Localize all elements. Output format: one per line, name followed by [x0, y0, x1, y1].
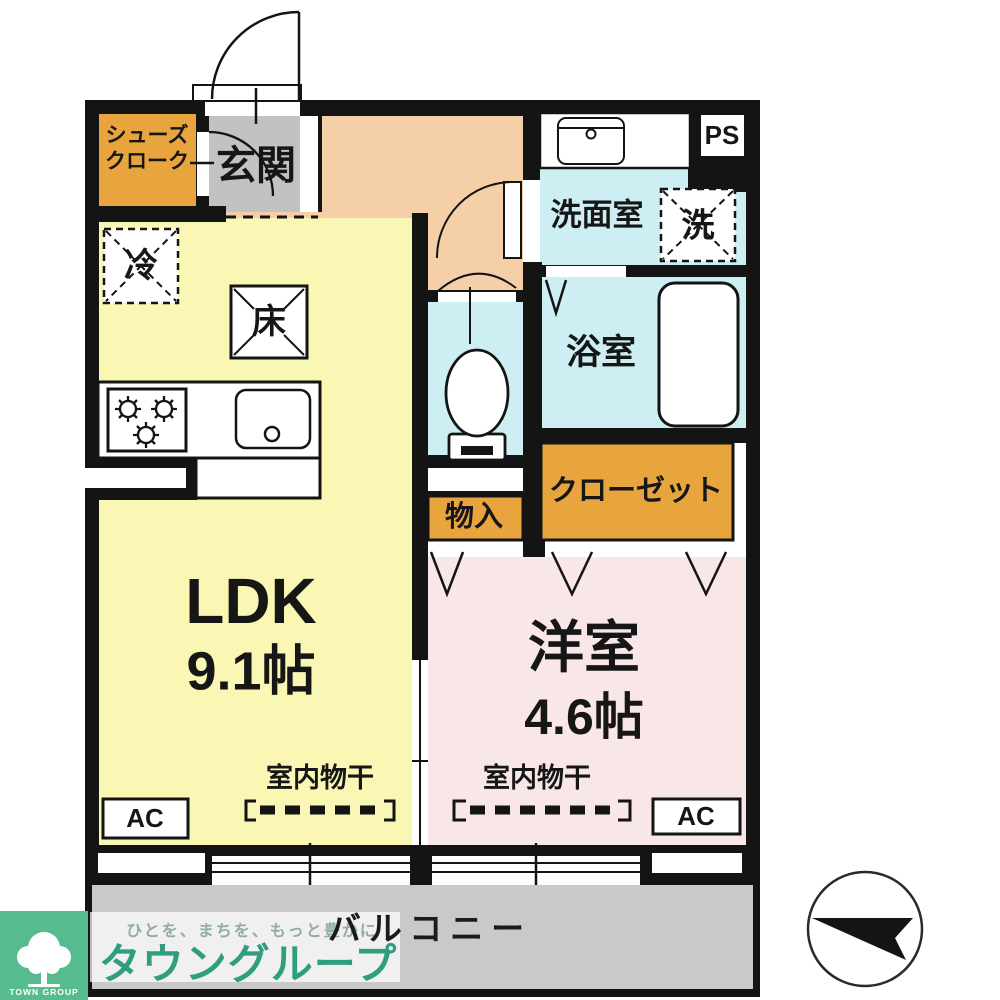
toilet-icon: [446, 350, 508, 460]
sliding-partition: [412, 660, 428, 845]
ldk-area-label: 9.1帖: [186, 638, 315, 706]
western-room-name-label: 洋室: [528, 613, 640, 683]
ac-ldk-label: AC: [126, 802, 164, 835]
entrance-label: 玄関: [216, 141, 296, 191]
kitchen-window: [85, 468, 186, 488]
bathroom-label: 浴室: [566, 331, 636, 375]
shoes-closet-label: シューズ クローク: [105, 123, 189, 176]
indoor-drying-ldk-label: 室内物干: [266, 762, 374, 796]
bathtub-icon: [659, 283, 738, 426]
western-room-area-label: 4.6帖: [524, 686, 644, 749]
ac-western-label: AC: [677, 800, 715, 833]
compass-icon: [808, 872, 922, 986]
washbasin-icon: [540, 113, 690, 168]
floorplan-page: シューズ クローク 玄関 洗面室 洗 PS 冷 床 浴室 クローゼット 物入 L…: [0, 0, 1000, 1000]
kitchen-sink-icon: [236, 390, 310, 448]
floor-storage-label: 床: [252, 301, 286, 344]
closet-label: クローゼット: [549, 473, 723, 509]
town-group-logo: TOWN GROUP: [0, 911, 88, 1000]
washroom-label: 洗面室: [551, 197, 644, 236]
ldk-name-label: LDK: [185, 561, 317, 641]
washing-machine-label: 洗: [682, 204, 715, 245]
refrigerator-label: 冷: [124, 245, 158, 288]
town-group-caption: TOWN GROUP: [9, 987, 78, 997]
storage-label: 物入: [445, 499, 503, 535]
pipe-space-label: PS: [705, 119, 740, 152]
balcony-label: バルコニー: [328, 902, 532, 950]
indoor-drying-western-label: 室内物干: [483, 762, 591, 796]
